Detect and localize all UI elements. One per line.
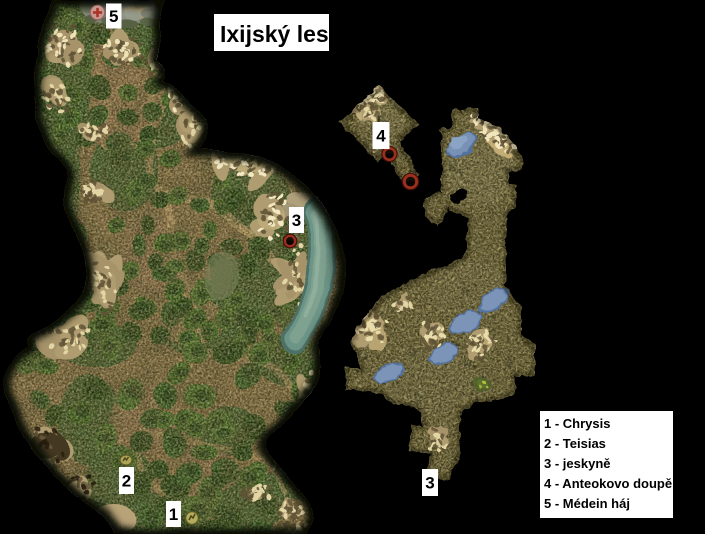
svg-text:3: 3 [292, 211, 301, 230]
svg-text:2: 2 [122, 472, 131, 491]
svg-text:1: 1 [169, 505, 178, 524]
svg-text:4 - Anteokovo doupě: 4 - Anteokovo doupě [544, 476, 672, 491]
svg-text:Ixijský les: Ixijský les [220, 21, 329, 47]
svg-text:5: 5 [109, 7, 118, 26]
svg-text:3 - jeskyně: 3 - jeskyně [544, 456, 611, 471]
svg-text:2 - Teisias: 2 - Teisias [544, 436, 606, 451]
svg-text:5 - Médein háj: 5 - Médein háj [544, 496, 630, 511]
svg-text:3: 3 [425, 474, 434, 493]
svg-text:4: 4 [376, 127, 386, 146]
svg-text:1 - Chrysis: 1 - Chrysis [544, 416, 610, 431]
